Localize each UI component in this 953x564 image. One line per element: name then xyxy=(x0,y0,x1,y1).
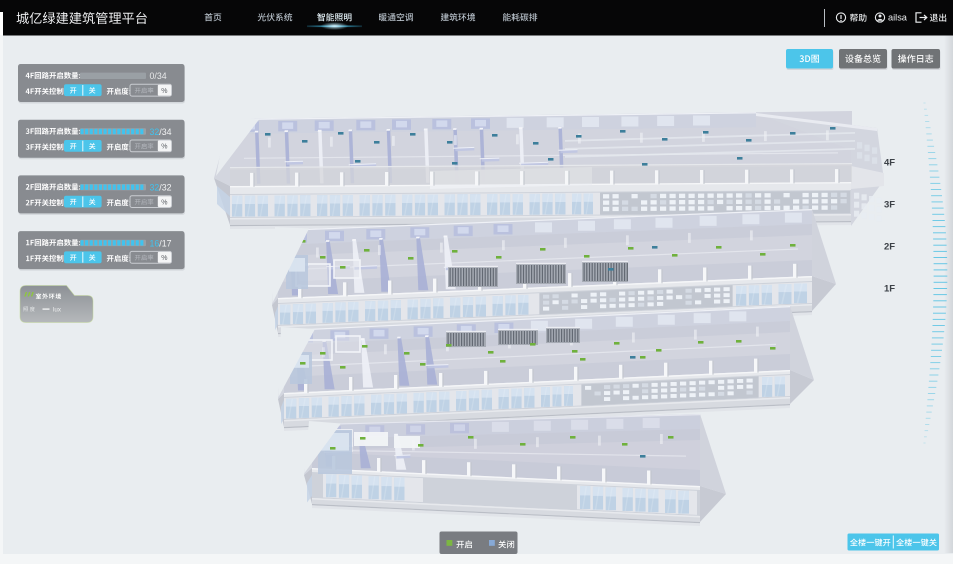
svg-text:/34: /34 xyxy=(159,127,171,137)
svg-text:%: % xyxy=(161,144,167,151)
svg-text:3F: 3F xyxy=(884,200,895,211)
svg-text:lux: lux xyxy=(53,307,62,314)
svg-text:2F: 2F xyxy=(884,242,895,253)
svg-text:4F: 4F xyxy=(884,158,895,169)
svg-text:0/34: 0/34 xyxy=(150,71,167,81)
svg-text:%: % xyxy=(161,255,167,262)
svg-text:16: 16 xyxy=(150,238,160,248)
svg-text:/32: /32 xyxy=(159,183,171,193)
svg-text:1F: 1F xyxy=(884,284,895,295)
svg-text:%: % xyxy=(161,88,167,95)
svg-text:%: % xyxy=(161,199,167,206)
svg-text:32: 32 xyxy=(150,183,160,193)
svg-text:/17: /17 xyxy=(159,238,171,248)
svg-text:ailsa: ailsa xyxy=(888,13,908,23)
svg-text:32: 32 xyxy=(150,127,160,137)
